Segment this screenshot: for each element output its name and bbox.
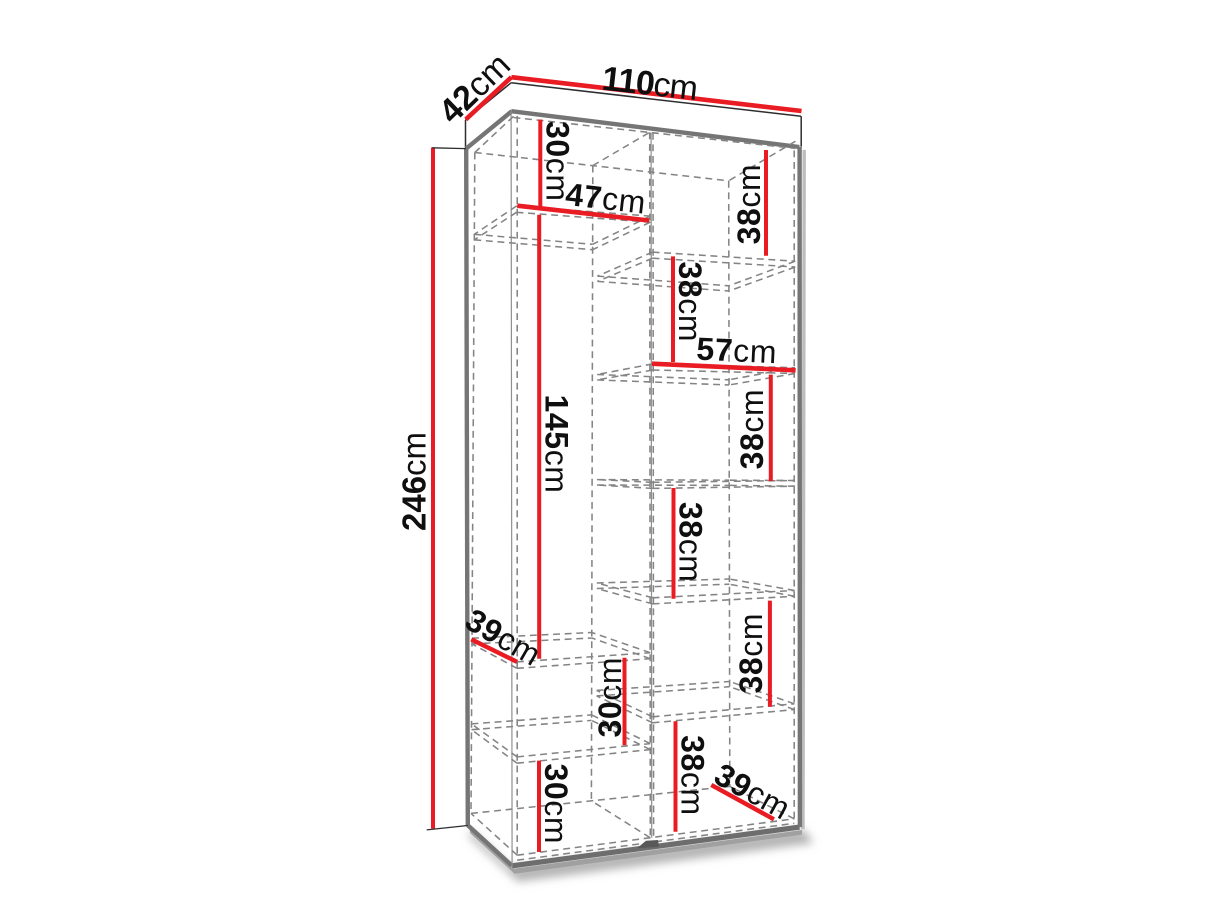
svg-text:38cm: 38cm xyxy=(731,164,767,245)
svg-text:38cm: 38cm xyxy=(733,613,769,694)
svg-text:30cm: 30cm xyxy=(592,657,628,738)
svg-text:145cm: 145cm xyxy=(538,395,574,494)
svg-text:57cm: 57cm xyxy=(696,331,778,371)
svg-text:30cm: 30cm xyxy=(538,764,574,845)
svg-text:246cm: 246cm xyxy=(396,432,433,531)
svg-text:38cm: 38cm xyxy=(675,735,711,816)
svg-text:38cm: 38cm xyxy=(673,502,709,583)
svg-text:38cm: 38cm xyxy=(734,389,770,470)
